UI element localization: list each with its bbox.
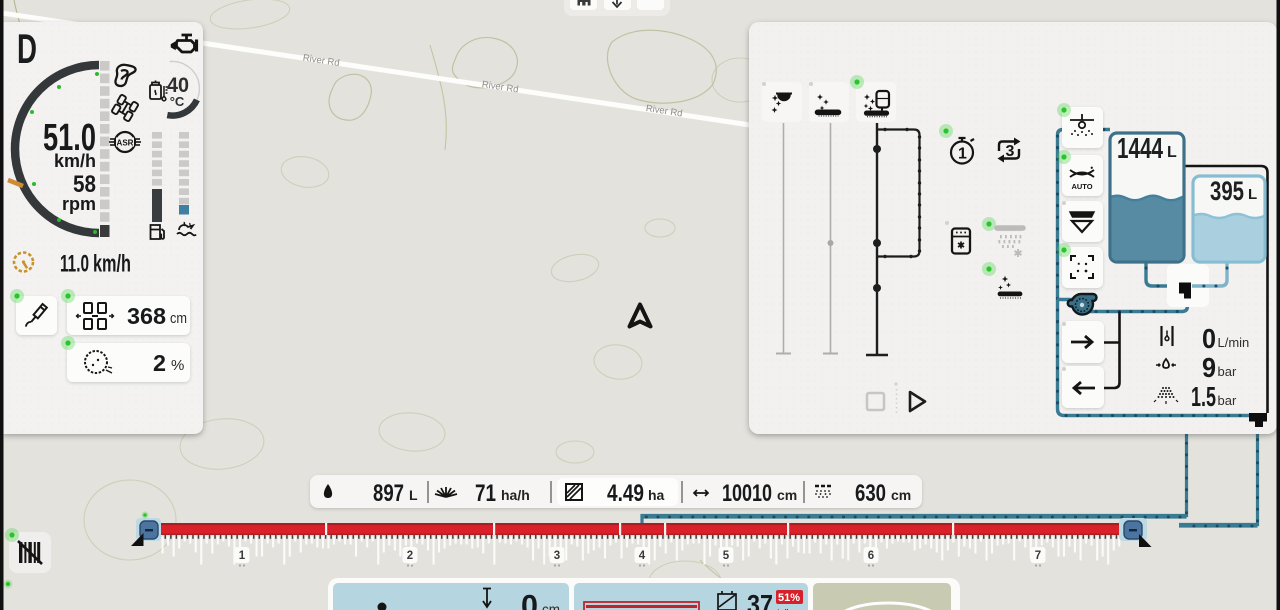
svg-text:°C: °C [170, 94, 185, 109]
svg-text:km/h: km/h [93, 251, 131, 278]
svg-text:0: 0 [1202, 323, 1216, 354]
svg-text:395: 395 [1210, 176, 1244, 206]
svg-text:2: 2 [407, 550, 413, 562]
svg-text:71: 71 [475, 480, 496, 507]
svg-text:1: 1 [958, 146, 967, 163]
svg-text:cm: cm [891, 487, 911, 503]
svg-text:7: 7 [1035, 550, 1041, 562]
svg-text:3: 3 [1006, 143, 1015, 160]
svg-text:5: 5 [723, 550, 730, 562]
svg-text:L: L [1248, 186, 1257, 203]
svg-text:0: 0 [521, 588, 538, 610]
svg-text:11.0: 11.0 [60, 251, 89, 278]
svg-text:rpm: rpm [62, 194, 96, 214]
svg-text:L: L [1167, 144, 1177, 161]
svg-text:897: 897 [373, 480, 404, 507]
svg-text:D: D [17, 25, 37, 72]
svg-text:51%: 51% [778, 592, 800, 604]
svg-text:L/min: L/min [1218, 335, 1250, 350]
svg-text:km/h: km/h [54, 151, 96, 171]
svg-text:4.49: 4.49 [607, 480, 644, 507]
svg-text:1.5: 1.5 [1191, 381, 1216, 412]
svg-text:2: 2 [153, 350, 166, 376]
svg-text:ha/h: ha/h [501, 487, 530, 503]
svg-text:AUTO: AUTO [1071, 182, 1092, 191]
svg-text:10010: 10010 [722, 480, 772, 507]
svg-text:9: 9 [1202, 352, 1216, 383]
svg-text:ASR: ASR [117, 138, 134, 148]
svg-text:630: 630 [855, 480, 886, 507]
svg-text:cm: cm [170, 310, 187, 327]
svg-text:368: 368 [127, 303, 166, 329]
svg-text:cm: cm [542, 602, 560, 610]
svg-text:3: 3 [554, 550, 560, 562]
svg-text:bar: bar [1218, 393, 1237, 408]
svg-text:ha: ha [648, 487, 665, 503]
svg-text:L: L [409, 487, 418, 503]
svg-text:6: 6 [868, 550, 874, 562]
svg-text:4: 4 [639, 550, 646, 562]
svg-text:cm: cm [777, 487, 797, 503]
svg-text:%: % [171, 357, 184, 374]
svg-text:1444: 1444 [1117, 133, 1163, 165]
svg-text:bar: bar [1218, 364, 1237, 379]
svg-text:1: 1 [239, 550, 246, 562]
svg-text:37: 37 [747, 589, 773, 610]
